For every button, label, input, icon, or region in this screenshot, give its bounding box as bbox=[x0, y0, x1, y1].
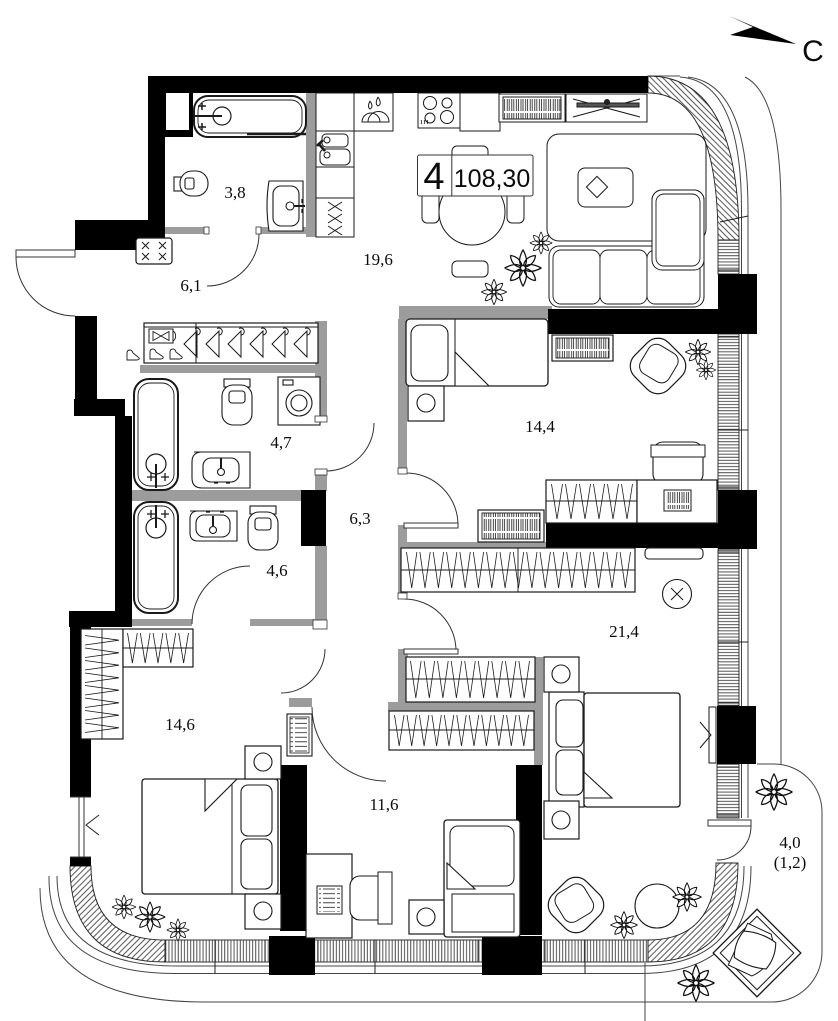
svg-text:6,3: 6,3 bbox=[349, 509, 370, 528]
svg-text:21,4: 21,4 bbox=[609, 622, 639, 641]
svg-text:4: 4 bbox=[423, 156, 444, 198]
svg-text:4,7: 4,7 bbox=[270, 433, 292, 452]
svg-text:14,6: 14,6 bbox=[165, 715, 195, 734]
svg-text:4,0: 4,0 bbox=[779, 833, 800, 852]
svg-text:11,6: 11,6 bbox=[369, 795, 398, 814]
svg-text:6,1: 6,1 bbox=[180, 276, 201, 295]
svg-text:(1,2): (1,2) bbox=[774, 853, 807, 872]
svg-text:С: С bbox=[802, 35, 824, 68]
svg-text:3,8: 3,8 bbox=[224, 183, 245, 202]
svg-text:19,6: 19,6 bbox=[363, 250, 393, 269]
svg-text:108,30: 108,30 bbox=[454, 165, 530, 193]
svg-text:4,6: 4,6 bbox=[266, 561, 287, 580]
svg-text:14,4: 14,4 bbox=[525, 417, 555, 436]
